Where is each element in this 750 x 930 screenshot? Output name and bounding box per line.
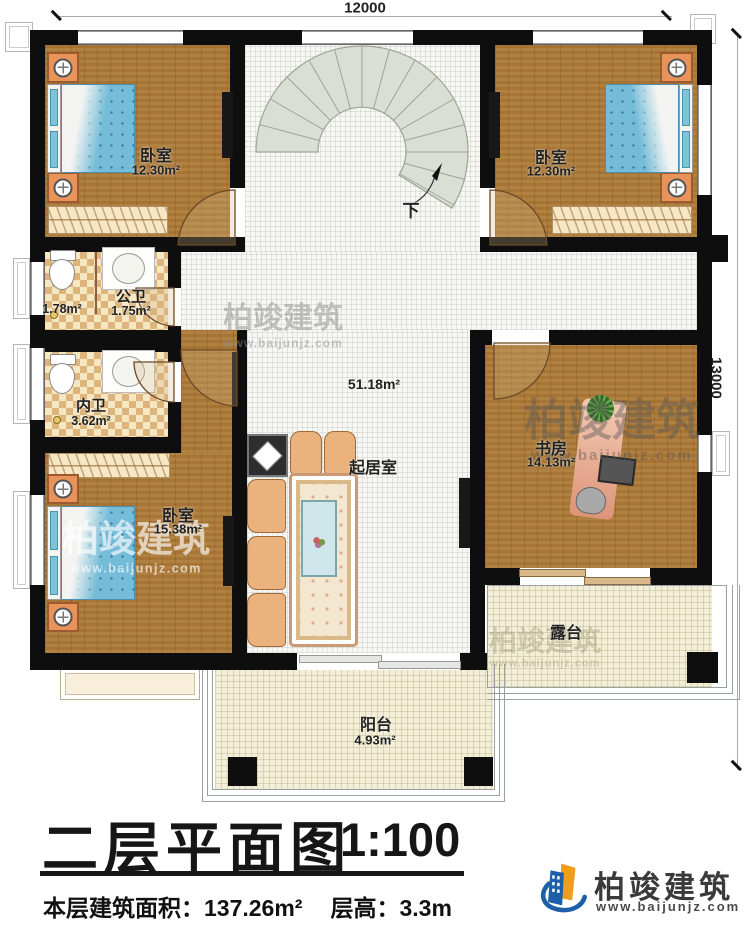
bedroom-tl-area: 12.30m² <box>132 163 180 178</box>
terrace-name: 露台 <box>550 619 582 643</box>
living-name: 起居室 <box>349 454 397 478</box>
floor-height-value: 3.3m <box>399 895 451 921</box>
door-bedroom-tr <box>490 190 547 245</box>
brand-logo-icon <box>538 860 588 914</box>
brand-logo: 柏竣建筑 www.baijunjz.com <box>538 858 738 918</box>
public-bath-area: 1.75m² <box>111 304 151 318</box>
floor-plan-page: 柏竣建筑 www.baijunjz.com 柏竣建筑 www.baijunjz.… <box>0 0 750 930</box>
study-area: 14.13m² <box>527 455 575 470</box>
balcony-name: 阳台 <box>360 711 392 735</box>
ensuite-bath-name: 内卫 <box>76 395 106 416</box>
dimension-line-right <box>737 35 738 770</box>
stairs-down-label: 下 <box>403 197 420 222</box>
door-bedroom-tl <box>178 190 235 245</box>
door-bedroom-bl <box>181 350 237 406</box>
floor-height-label: 层高： <box>330 895 399 921</box>
balcony-area: 4.93m² <box>354 733 395 748</box>
floor-plan: 柏竣建筑 www.baijunjz.com 柏竣建筑 www.baijunjz.… <box>0 0 750 810</box>
plan-scale: 1:100 <box>340 812 460 867</box>
door-swings <box>0 0 750 810</box>
dimension-right: 13000 <box>708 357 725 399</box>
floor-info: 本层建筑面积：137.26m²层高：3.3m <box>43 889 452 923</box>
floor-area-label: 本层建筑面积： <box>43 895 204 921</box>
bath-anteroom-area: 1.78m² <box>42 302 82 316</box>
living-area: 51.18m² <box>348 376 400 392</box>
bedroom-bl-area: 15.38m² <box>154 522 202 537</box>
bedroom-tr-area: 12.30m² <box>527 164 575 179</box>
door-study <box>494 343 550 399</box>
dimension-top: 12000 <box>344 0 386 17</box>
brand-url: www.baijunjz.com <box>596 899 740 914</box>
floor-area-value: 137.26m² <box>204 895 302 921</box>
title-underline <box>40 871 464 876</box>
ensuite-bath-area: 3.62m² <box>71 414 111 428</box>
door-ensuite-bath <box>134 362 174 402</box>
